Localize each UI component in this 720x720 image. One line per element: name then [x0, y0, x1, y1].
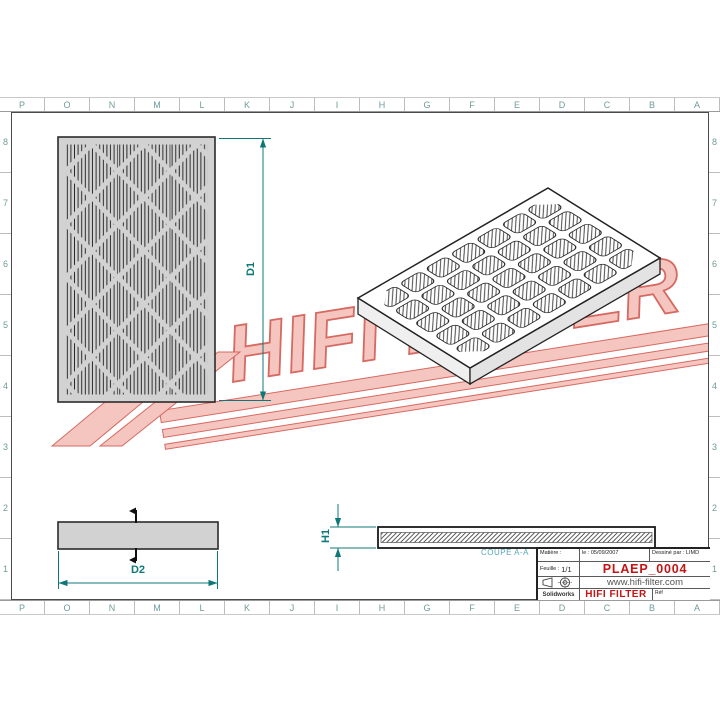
grid-col-label: M: [135, 98, 180, 111]
part-number: PLAEP_0004: [580, 562, 710, 576]
grid-band-bottom: P O N M L K J I H G F E D C B A: [0, 600, 720, 615]
brand-label: HIFI FILTER: [580, 589, 653, 600]
front-view-media: [66, 145, 208, 395]
grid-row-label: 5: [0, 295, 11, 356]
grid-col-label: K: [225, 601, 270, 614]
grid-row-label: 7: [0, 173, 11, 234]
grid-col-label: D: [540, 601, 585, 614]
grid-col-label: K: [225, 98, 270, 111]
grid-row-label: 1: [709, 539, 720, 600]
grid-col-label: O: [45, 601, 90, 614]
grid-col-label: I: [315, 98, 360, 111]
grid-col-label: H: [360, 601, 405, 614]
grid-col-label: C: [585, 98, 630, 111]
grid-col-label: J: [270, 601, 315, 614]
grid-col-label: A: [675, 601, 720, 614]
iso-view: [358, 188, 660, 384]
grid-col-label: N: [90, 98, 135, 111]
grid-row-label: 1: [0, 539, 11, 600]
dim-label-d2: D2: [108, 564, 168, 576]
material-label: Matière :: [538, 549, 580, 561]
website: www.hifi-filter.com: [580, 577, 710, 588]
grid-col-label: H: [360, 98, 405, 111]
dimension-h1: [330, 504, 376, 571]
grid-col-label: M: [135, 601, 180, 614]
grid-col-label: F: [450, 98, 495, 111]
ref-label: Réf: [653, 589, 710, 600]
grid-col-label: G: [405, 601, 450, 614]
drawing-sheet: HIFI FILTER: [0, 0, 720, 720]
grid-col-label: L: [180, 98, 225, 111]
section-media-hatch: [381, 533, 652, 543]
grid-row-label: 7: [709, 173, 720, 234]
grid-col-label: C: [585, 601, 630, 614]
side-view: [58, 508, 218, 564]
section-view: [378, 527, 655, 548]
grid-row-label: 3: [0, 417, 11, 478]
grid-col-label: G: [405, 98, 450, 111]
grid-band-left: 8 7 6 5 4 3 2 1: [0, 112, 11, 600]
drawn-by-label: Dessiné par : LIMD: [650, 549, 710, 561]
software-label: Solidworks: [538, 589, 580, 600]
title-block: Matière : le : 05/09/2007 Dessiné par : …: [536, 547, 710, 600]
grid-col-label: N: [90, 601, 135, 614]
dim-label-d1: D1: [245, 254, 257, 284]
grid-row-label: 2: [0, 478, 11, 539]
grid-row-label: 5: [709, 295, 720, 356]
front-view: [58, 137, 215, 402]
projection-symbol-icon: [538, 577, 580, 588]
grid-row-label: 4: [0, 356, 11, 417]
sheet-number-label: Feuille :: [540, 566, 559, 572]
grid-band-top: P O N M L K J I H G F E D C B A: [0, 97, 720, 112]
grid-col-label: B: [630, 601, 675, 614]
grid-col-label: J: [270, 98, 315, 111]
grid-col-label: P: [0, 601, 45, 614]
grid-col-label: L: [180, 601, 225, 614]
grid-row-label: 8: [709, 112, 720, 173]
grid-col-label: O: [45, 98, 90, 111]
grid-row-label: 6: [709, 234, 720, 295]
grid-col-label: B: [630, 98, 675, 111]
grid-row-label: 6: [0, 234, 11, 295]
sheet-number: Feuille : 1/1: [538, 562, 580, 576]
grid-row-label: 2: [709, 478, 720, 539]
side-view-body: [58, 522, 218, 549]
grid-col-label: E: [495, 601, 540, 614]
grid-col-label: A: [675, 98, 720, 111]
grid-col-label: D: [540, 98, 585, 111]
dim-label-h1: H1: [320, 521, 332, 551]
grid-col-label: E: [495, 98, 540, 111]
sheet-number-value: 1/1: [561, 565, 571, 574]
grid-band-right: 8 7 6 5 4 3 2 1: [709, 112, 720, 600]
date-label: le : 05/09/2007: [580, 549, 650, 561]
grid-row-label: 4: [709, 356, 720, 417]
grid-col-label: P: [0, 98, 45, 111]
grid-col-label: F: [450, 601, 495, 614]
grid-col-label: I: [315, 601, 360, 614]
grid-row-label: 3: [709, 417, 720, 478]
section-title: COUPE A-A: [474, 548, 536, 557]
grid-row-label: 8: [0, 112, 11, 173]
